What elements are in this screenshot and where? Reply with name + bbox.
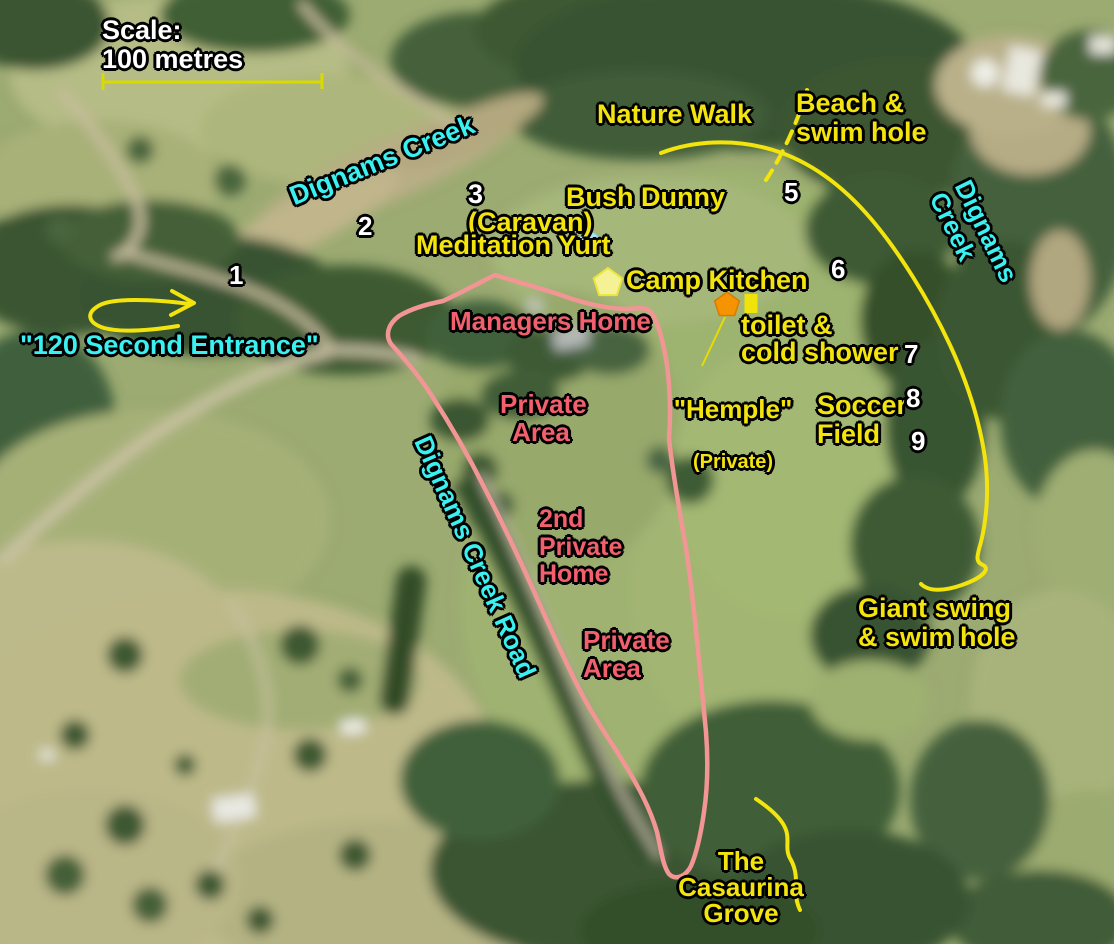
site-marker-7: 7 [904, 341, 918, 369]
casaurina-grove-label: The Casaurina Grove [676, 848, 806, 926]
hemple-label: "Hemple" (Private) [668, 367, 798, 501]
soccer-field-label: Soccer Field [817, 391, 907, 448]
giant-swing-label: Giant swing & swim hole [858, 594, 1016, 651]
private-area-upper-label: Private Area [500, 391, 582, 446]
scale-label: Scale: 100 metres [102, 16, 243, 73]
managers-home-label: Managers Home [450, 308, 651, 336]
entrance-arrow [90, 291, 194, 331]
bush-dunny-label: Bush Dunny [566, 183, 725, 212]
hemple-pointer-line [702, 317, 725, 366]
entrance-label: "120 Second Entrance" [20, 331, 319, 360]
private-area-lower-label: Private Area [583, 627, 670, 682]
site-marker-9: 9 [911, 428, 925, 456]
site-marker-2: 2 [358, 213, 372, 241]
nature-walk-label: Nature Walk [597, 100, 752, 129]
meditation-yurt-label: Meditation Yurt [416, 231, 611, 260]
site-marker-8: 8 [906, 385, 920, 413]
map-annotations [0, 0, 1114, 944]
site-marker-3: 3 [468, 179, 483, 209]
beach-swim-hole-label: Beach & swim hole [796, 89, 927, 146]
toilet-marker [715, 292, 740, 316]
toilet-cold-shower-label: toilet & cold shower [741, 312, 899, 366]
camp-kitchen-label: Camp Kitchen [626, 266, 808, 295]
site-marker-1: 1 [229, 262, 243, 290]
site-marker-5: 5 [784, 179, 798, 207]
camp-kitchen-marker [594, 268, 623, 295]
scale-bar [103, 73, 322, 90]
site-marker-6: 6 [831, 256, 845, 284]
second-private-home-label: 2nd Private Home [539, 506, 622, 589]
campground-aerial-map: Scale: 100 metres Dignams Creek Dignams … [0, 0, 1114, 944]
hemple-private-note: (Private) [668, 452, 798, 473]
hemple-name: "Hemple" [668, 396, 798, 424]
